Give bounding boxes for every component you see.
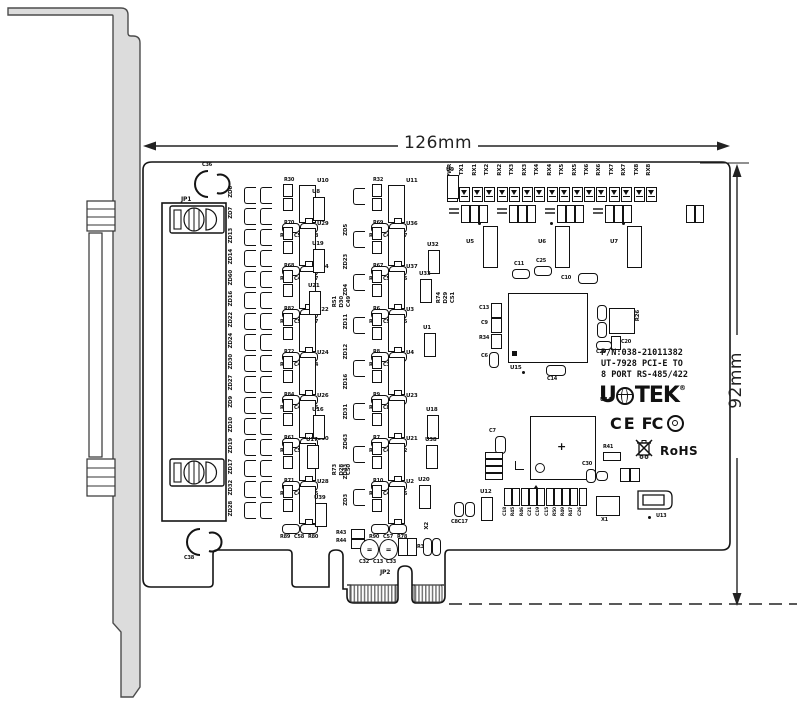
cap-label: R90 [369, 535, 379, 540]
capacitor [562, 488, 570, 506]
c10-label: C10 [561, 276, 571, 281]
small-ic [427, 415, 439, 439]
resistor [283, 313, 293, 326]
diode-bracket [244, 460, 256, 477]
diode-bracket [260, 397, 272, 414]
capacitor [521, 488, 529, 506]
capacitor [504, 488, 512, 506]
resistor [372, 198, 382, 211]
c33-label: C33 [386, 560, 396, 565]
led-label: TX6 [585, 164, 591, 175]
diode-bracket [260, 250, 272, 267]
led-tx4 [534, 187, 545, 202]
capacitor [554, 488, 562, 506]
resistor-array [575, 205, 584, 223]
led-label: RX7 [622, 164, 628, 176]
resistor [372, 284, 382, 297]
resistor [283, 327, 293, 340]
led-label: TX3 [510, 164, 516, 175]
resistor-label: R82 [284, 307, 294, 312]
zd-label: ZD24 [229, 333, 235, 348]
resistor [283, 227, 293, 240]
ports-text: 8 PORT RS-485/422 [601, 371, 688, 380]
diode-bracket [353, 188, 365, 205]
resistor-label: R6 [373, 307, 380, 312]
weee-bin-icon [634, 438, 654, 460]
resistor-array [518, 205, 527, 223]
capacitor [570, 488, 578, 506]
led-label: RX2 [498, 164, 504, 176]
led-rx7 [621, 187, 632, 202]
diode-bracket [244, 439, 256, 456]
c6-label: C6 [481, 354, 488, 359]
small-ic [307, 445, 319, 469]
u14-center-mark: + [557, 440, 566, 453]
cap-label: R50 [554, 507, 559, 516]
resistor-label: R7 [373, 436, 380, 441]
ref-text-mark [449, 212, 459, 214]
jp1-label: JP1 [181, 197, 191, 203]
ref-text-mark [449, 208, 459, 210]
small-ic [313, 415, 325, 439]
c11-label: C11 [514, 262, 524, 267]
led-label: TX4 [535, 164, 541, 175]
small-ic-label: U39 [314, 496, 326, 502]
transceiver-label: U21 [406, 437, 418, 443]
zd-label: ZD9 [229, 396, 235, 408]
diode-bracket [244, 250, 256, 267]
small-ic [424, 333, 436, 357]
led-label: TX7 [610, 164, 616, 175]
resistor-label: R70 [284, 221, 294, 226]
led-rx6 [596, 187, 607, 202]
led-tx6 [584, 187, 595, 202]
led-label: RX1 [473, 164, 479, 176]
zd-label: ZD17 [229, 459, 235, 474]
resistor [283, 198, 293, 211]
cap-label: C19 [537, 507, 542, 516]
transceiver-chip [388, 185, 405, 223]
cert-circle-icon [667, 415, 684, 432]
transceiver-label: U37 [406, 265, 418, 271]
small-ic [313, 249, 325, 273]
diode-bracket [353, 403, 365, 420]
resistor [283, 399, 293, 412]
capacitor [389, 524, 407, 534]
resistor [372, 413, 382, 426]
transceiver-chip [388, 357, 405, 395]
diode-bracket [260, 229, 272, 246]
diode-bracket [353, 446, 365, 463]
transceiver-label: U28 [317, 480, 329, 486]
c7-label: C7 [489, 429, 496, 434]
zd-label: ZD12 [344, 344, 350, 359]
small-ic-label: U19 [312, 242, 324, 248]
diode-bracket [244, 481, 256, 498]
ref-text-mark [545, 208, 555, 210]
diode-bracket [353, 231, 365, 248]
resistor [372, 399, 382, 412]
c8c17-label: C8C17 [451, 520, 468, 525]
transceiver-chip [388, 400, 405, 438]
u7-label: U7 [610, 240, 618, 246]
resistor-label: R10 [373, 479, 383, 484]
cap-label: C15 [546, 507, 551, 516]
cert-marks: CE FC [610, 414, 684, 433]
transceiver-label: U4 [406, 351, 414, 357]
led-label: RX6 [597, 164, 603, 176]
zd-label: ZD23 [344, 254, 350, 269]
logo-text-left: U [599, 383, 616, 408]
resistor-label: R9 [373, 393, 380, 398]
electrolytic-cap: = [379, 539, 398, 560]
ref-label: D30 [340, 296, 346, 308]
zd-label: ZD6 [229, 186, 235, 198]
u14-pin1-mark [535, 463, 545, 473]
small-ic [447, 175, 459, 199]
resistor [372, 356, 382, 369]
diode-bracket [244, 208, 256, 225]
diode-bracket [244, 376, 256, 393]
cap-label: C26 [579, 507, 584, 516]
resistor [283, 413, 293, 426]
registered-mark: ® [679, 384, 686, 392]
diode-bracket [260, 271, 272, 288]
diode-bracket [244, 271, 256, 288]
transceiver-label: U36 [406, 222, 418, 228]
electrolytic-cap: = [360, 539, 379, 560]
led-rx8 [646, 187, 657, 202]
cap-label: C18 [504, 507, 509, 516]
transceiver-chip [388, 271, 405, 309]
globe-icon [616, 387, 634, 405]
c30-label: C30 [582, 462, 592, 467]
diode-bracket [260, 313, 272, 330]
resistor-label: R84 [284, 393, 294, 398]
zd-label: ZD22 [229, 312, 235, 327]
resistor-label: R69 [373, 221, 383, 226]
c36-label: C36 [202, 163, 212, 168]
ref-text-mark [593, 208, 603, 210]
resistor [372, 227, 382, 240]
resistor-array [623, 205, 632, 223]
u15-chip [508, 293, 588, 363]
resistor [372, 499, 382, 512]
small-ic-label: U8 [312, 190, 320, 196]
resistor [372, 241, 382, 254]
ref-text-mark [545, 212, 555, 214]
ref-label: R74 [437, 292, 443, 303]
led-rx4 [547, 187, 558, 202]
diode-bracket [244, 397, 256, 414]
u13-label: U13 [656, 514, 666, 519]
diode-bracket [260, 460, 272, 477]
resistor [283, 442, 293, 455]
led-tx3 [509, 187, 520, 202]
led-rx5 [572, 187, 583, 202]
zd-label: ZD60 [229, 270, 235, 285]
led-tx7 [609, 187, 620, 202]
resistor-label: R30 [284, 178, 294, 183]
resistor-array [527, 205, 536, 223]
resistor-array [686, 205, 695, 223]
small-ic-label: U18 [426, 408, 438, 414]
ref-label: C51 [451, 292, 457, 303]
c14-label: C14 [547, 377, 557, 382]
small-ic-label: U33 [419, 272, 431, 278]
resistor-label: R68 [284, 264, 294, 269]
ref-label: D29 [444, 292, 450, 304]
c20-label: C20 [621, 340, 631, 345]
resistor-array [509, 205, 518, 223]
diode-bracket [260, 208, 272, 225]
x1-crystal [596, 496, 620, 516]
x2-label: X2 [425, 522, 431, 530]
x1-label: X1 [601, 518, 608, 523]
resistor-label: R72 [284, 350, 294, 355]
ref-label: R73 [333, 464, 339, 475]
diode-bracket [244, 418, 256, 435]
small-ic [309, 291, 321, 315]
resistor-array [605, 205, 614, 223]
small-ic-label: U12 [480, 490, 492, 496]
resistor [372, 485, 382, 498]
zd-label: ZD28 [229, 501, 235, 516]
cap-label: C58 [294, 535, 304, 540]
small-ic-label: U1 [423, 326, 431, 332]
diode-bracket [260, 502, 272, 519]
c38-label: C38 [184, 556, 194, 561]
small-ic-label: U38 [425, 438, 437, 444]
diode-bracket [244, 292, 256, 309]
zd-label: ZD19 [229, 438, 235, 453]
resistor [283, 184, 293, 197]
small-ic [419, 485, 431, 509]
transceiver-label: U24 [317, 351, 329, 357]
diode-bracket [244, 187, 256, 204]
small-ic-label: U16 [312, 408, 324, 414]
diode-bracket [260, 334, 272, 351]
small-ic-label: U21 [308, 284, 320, 290]
resistor [372, 327, 382, 340]
resistor [283, 270, 293, 283]
led-rx1 [472, 187, 483, 202]
resistor [372, 270, 382, 283]
cap-label: R46 [521, 507, 526, 516]
fcc-mark: FC [642, 414, 663, 433]
capacitor [546, 488, 554, 506]
ref-label: R51 [333, 296, 339, 307]
small-ic-label: U17 [306, 438, 318, 444]
resistor [283, 485, 293, 498]
resistor-label: R61 [284, 436, 294, 441]
resistor-array [461, 205, 470, 223]
transceiver-chip [388, 486, 405, 524]
resistor-array [614, 205, 623, 223]
zd-label: ZD14 [229, 249, 235, 264]
led-tx2 [484, 187, 495, 202]
zd-label: ZD63 [344, 434, 350, 449]
resistor-label: R8 [373, 350, 380, 355]
cap-label: R47 [570, 507, 575, 516]
transceiver-chip [299, 314, 316, 352]
capacitor [371, 524, 389, 534]
resistor [372, 370, 382, 383]
ref-text-mark [593, 212, 603, 214]
led-tx1 [459, 187, 470, 202]
resistor-array [566, 205, 575, 223]
capacitor [512, 488, 520, 506]
r44-label: R44 [336, 539, 346, 544]
cap-label: C57 [383, 535, 393, 540]
diode-bracket [244, 502, 256, 519]
model-text: UT-7928 PCI-E TO [601, 360, 683, 369]
height-dimension-label: 92mm [726, 352, 746, 409]
r43-label: R43 [336, 531, 346, 536]
diode-bracket [244, 229, 256, 246]
diode-bracket [353, 274, 365, 291]
resistor-label: R71 [284, 479, 294, 484]
zd-label: ZD32 [229, 480, 235, 495]
zd-label: ZD11 [344, 314, 350, 329]
led-label: RX4 [548, 164, 554, 176]
cap-label: C21 [529, 507, 534, 516]
diode-bracket [260, 439, 272, 456]
ref-label: D28 [340, 464, 346, 476]
small-ic-label: U20 [418, 478, 430, 484]
transceiver-label: U26 [317, 394, 329, 400]
small-ic-label: U9 [446, 168, 454, 174]
cap-label: R89 [280, 535, 290, 540]
u15-label: U15 [510, 366, 522, 372]
u14-label: U14 [600, 398, 612, 404]
capacitor [537, 488, 545, 506]
small-ic [481, 497, 493, 521]
diode-bracket [353, 317, 365, 334]
resistor [283, 499, 293, 512]
resistor [283, 456, 293, 469]
zd-label: ZD5 [344, 224, 350, 236]
resistor [283, 241, 293, 254]
c25-label: C25 [536, 259, 546, 264]
led-rx3 [522, 187, 533, 202]
zd-label: ZD10 [229, 417, 235, 432]
diode-bracket [260, 292, 272, 309]
transceiver-chip [388, 314, 405, 352]
part-number-text: P/N:038-21011382 [601, 349, 683, 358]
resistor [372, 456, 382, 469]
diode-bracket [244, 313, 256, 330]
led-tx8 [634, 187, 645, 202]
resistor-label: R67 [373, 264, 383, 269]
capacitor [282, 524, 300, 534]
transceiver-chip [299, 357, 316, 395]
diode-bracket [244, 334, 256, 351]
diode-bracket [353, 360, 365, 377]
u13-part [636, 490, 674, 510]
zd-label: ZD31 [344, 404, 350, 419]
resistor [283, 284, 293, 297]
logo-text-right: TEK [635, 383, 679, 408]
transceiver-label: U2 [406, 480, 414, 486]
r41-label: R41 [603, 445, 613, 450]
c32-label: C32 [359, 560, 369, 565]
cap-label: R78 [397, 535, 407, 540]
led-label: RX5 [573, 164, 579, 176]
u7-chip [627, 226, 642, 268]
resistor [283, 356, 293, 369]
diode-bracket [260, 376, 272, 393]
resistor [372, 313, 382, 326]
led-tx5 [559, 187, 570, 202]
resistor-array [470, 205, 479, 223]
ce-mark: CE [610, 414, 637, 433]
zd-label: ZD4 [344, 284, 350, 296]
diode-bracket [260, 187, 272, 204]
rohs-text: RoHS [660, 444, 698, 458]
small-ic [313, 197, 325, 221]
cap-label: R45 [512, 507, 517, 516]
c9-label: C9 [481, 321, 488, 326]
uotek-logo: U TEK ® [599, 383, 686, 408]
resistor-label: R32 [373, 178, 383, 183]
transceiver-label: U10 [317, 179, 329, 185]
diode-bracket [353, 489, 365, 506]
width-dimension-label: 126mm [398, 133, 478, 153]
transceiver-chip [299, 486, 316, 524]
diode-bracket [244, 355, 256, 372]
small-ic [426, 445, 438, 469]
led-label: RX8 [647, 164, 653, 176]
resistor [283, 370, 293, 383]
small-ic [420, 279, 432, 303]
r34-label: R34 [479, 336, 489, 341]
transceiver-chip [388, 443, 405, 481]
zd-label: ZD3 [344, 494, 350, 506]
diode-bracket [260, 355, 272, 372]
pcb-dimension-diagram: { "dimensions": { "width": "126mm", "hei… [0, 0, 800, 706]
transceiver-chip [388, 228, 405, 266]
transceiver-label: U23 [406, 394, 418, 400]
resistor-array [695, 205, 704, 223]
r26-label: R26 [636, 310, 642, 321]
capacitor [579, 488, 587, 506]
diode-bracket [260, 481, 272, 498]
resistor-array [479, 205, 488, 223]
u6-label: U6 [538, 240, 546, 246]
transceiver-label: U11 [406, 179, 418, 185]
ref-label: C50 [347, 464, 353, 475]
led-label: TX2 [485, 164, 491, 175]
zd-label: ZD27 [229, 375, 235, 390]
resistor-array [557, 205, 566, 223]
ref-label: C49 [347, 296, 353, 307]
c13-label: C13 [479, 306, 489, 311]
small-ic-label: U32 [427, 243, 439, 249]
u5-chip [483, 226, 498, 268]
ref-text-mark [497, 208, 507, 210]
zd-label: ZD16 [344, 374, 350, 389]
jp2-label: JP2 [380, 570, 390, 576]
ref-text-mark [497, 212, 507, 214]
capacitor [529, 488, 537, 506]
zd-label: ZD30 [229, 354, 235, 369]
led-label: TX1 [460, 164, 466, 175]
led-label: TX8 [635, 164, 641, 175]
resistor [372, 184, 382, 197]
diode-bracket [260, 418, 272, 435]
zd-label: ZD16 [229, 291, 235, 306]
